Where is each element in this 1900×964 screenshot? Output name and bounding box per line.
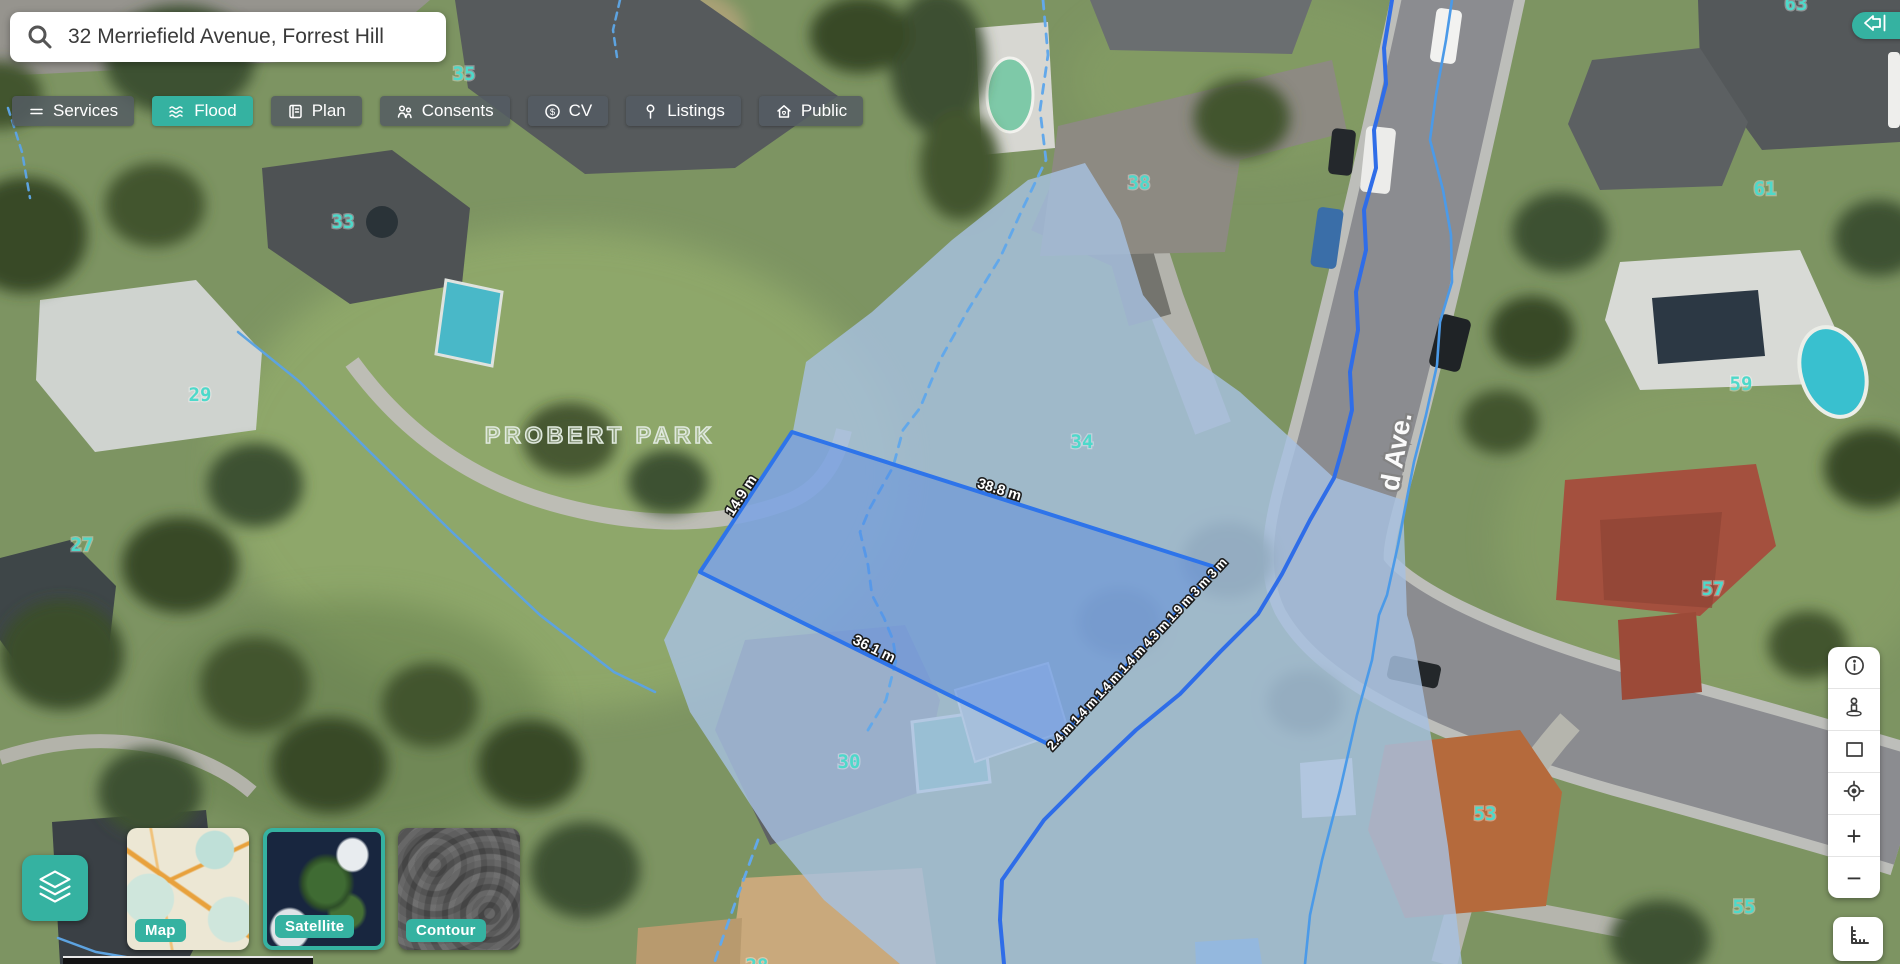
basemap-option-map[interactable]: Map xyxy=(127,828,249,950)
zoom-out-button[interactable]: − xyxy=(1828,857,1880,898)
house-number: 30 xyxy=(838,751,861,773)
basemap-option-contour[interactable]: Contour xyxy=(398,828,520,950)
public-label: Public xyxy=(801,101,847,121)
flood-waves-icon xyxy=(168,103,186,120)
house-number: 61 xyxy=(1754,178,1777,200)
house-number: 35 xyxy=(453,63,476,85)
flood-button[interactable]: Flood xyxy=(152,96,253,126)
property-map-app: PROBERT PARK d Ave. 35 33 29 27 63 61 38… xyxy=(0,0,1900,964)
search-input[interactable] xyxy=(66,24,446,50)
info-icon xyxy=(1843,654,1866,682)
house-number: 57 xyxy=(1702,578,1725,600)
draw-rectangle-icon xyxy=(1843,738,1866,766)
basemap-satellite-label: Satellite xyxy=(275,915,354,938)
house-number: 28 xyxy=(746,955,769,964)
draw-area-button[interactable] xyxy=(1828,731,1880,773)
consents-people-icon xyxy=(396,103,414,120)
measure-ruler-icon xyxy=(1845,924,1871,955)
consents-label: Consents xyxy=(422,101,494,121)
basemap-contour-label: Contour xyxy=(406,919,486,942)
basemap-option-satellite[interactable]: Satellite xyxy=(263,828,385,950)
map-mode-toolbar: Services Flood Plan Consents xyxy=(12,96,881,126)
plan-label: Plan xyxy=(312,101,346,121)
collapse-left-icon xyxy=(1862,12,1892,39)
measure-button[interactable] xyxy=(1833,917,1883,961)
services-label: Services xyxy=(53,101,118,121)
zoom-in-icon: + xyxy=(1846,823,1861,849)
services-button[interactable]: Services xyxy=(12,96,134,126)
address-search-bar xyxy=(10,12,446,62)
map-canvas[interactable]: PROBERT PARK d Ave. 35 33 29 27 63 61 38… xyxy=(0,0,1900,964)
cv-label: CV xyxy=(569,101,593,121)
cv-button[interactable]: $ CV xyxy=(528,96,609,126)
services-icon xyxy=(28,103,45,120)
plan-book-icon xyxy=(287,103,304,120)
layers-icon xyxy=(35,866,75,911)
info-button[interactable] xyxy=(1828,647,1880,689)
public-house-icon xyxy=(775,103,793,120)
house-number: 63 xyxy=(1785,0,1808,15)
consents-button[interactable]: Consents xyxy=(380,96,510,126)
zoom-in-button[interactable]: + xyxy=(1828,815,1880,857)
house-number: 27 xyxy=(71,534,94,556)
flood-label: Flood xyxy=(194,101,237,121)
house-number: 29 xyxy=(189,384,212,406)
house-number: 38 xyxy=(1128,172,1151,194)
house-number: 59 xyxy=(1730,373,1753,395)
locate-me-button[interactable] xyxy=(1828,773,1880,815)
locate-icon xyxy=(1842,779,1866,808)
map-tools-panel: + − xyxy=(1828,647,1880,898)
listings-button[interactable]: Listings xyxy=(626,96,741,126)
svg-text:$: $ xyxy=(549,107,555,118)
public-button[interactable]: Public xyxy=(759,96,863,126)
zoom-out-icon: − xyxy=(1846,865,1861,891)
basemap-map-label: Map xyxy=(135,919,186,942)
park-label: PROBERT PARK xyxy=(485,422,715,448)
search-icon xyxy=(26,23,54,51)
side-panel-toggle-button[interactable] xyxy=(1852,12,1900,39)
listings-pin-icon xyxy=(642,103,659,120)
listings-label: Listings xyxy=(667,101,725,121)
house-number: 53 xyxy=(1474,803,1497,825)
street-view-button[interactable] xyxy=(1828,689,1880,731)
plan-button[interactable]: Plan xyxy=(271,96,362,126)
house-number: 34 xyxy=(1071,431,1094,453)
layers-button[interactable] xyxy=(22,855,88,921)
house-number: 55 xyxy=(1733,896,1756,918)
attribution-strip xyxy=(63,956,313,964)
cv-dollar-icon: $ xyxy=(544,103,561,120)
house-number: 33 xyxy=(332,211,355,233)
street-view-pegman-icon xyxy=(1842,695,1866,724)
